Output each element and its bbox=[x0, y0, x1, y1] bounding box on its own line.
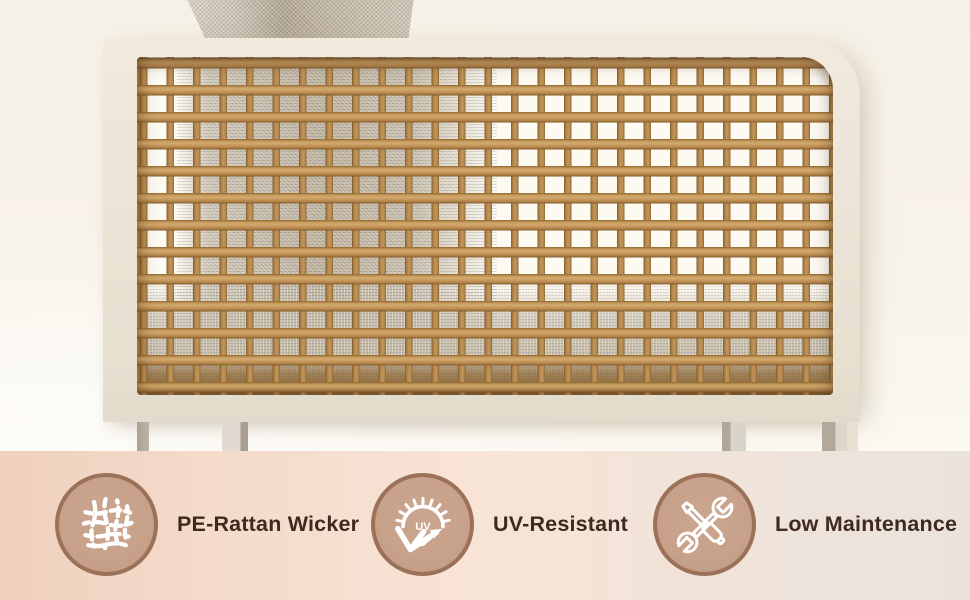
chair-leg bbox=[822, 422, 858, 451]
wicker-weave-icon bbox=[71, 489, 143, 561]
feature-label: PE-Rattan Wicker bbox=[177, 512, 359, 537]
crossed-tools-icon bbox=[669, 489, 741, 561]
feature-badge: UV bbox=[371, 473, 474, 576]
panel-inner-shadow bbox=[137, 57, 833, 395]
feature-low-maintenance: Low Maintenance bbox=[653, 473, 957, 576]
chair-leg bbox=[222, 422, 248, 451]
feature-uv-resistant: UV UV-Resistant bbox=[371, 473, 628, 576]
rattan-panel bbox=[137, 57, 833, 395]
product-showcase: PE-Rattan Wicker bbox=[0, 0, 970, 600]
feature-band: PE-Rattan Wicker bbox=[0, 451, 970, 600]
uv-sun-reflect-icon: UV bbox=[386, 488, 460, 562]
back-cushion bbox=[185, 0, 417, 40]
feature-label: UV-Resistant bbox=[493, 512, 628, 537]
feature-pe-rattan-wicker: PE-Rattan Wicker bbox=[55, 473, 359, 576]
feature-badge bbox=[653, 473, 756, 576]
chair-leg bbox=[137, 422, 149, 451]
feature-label: Low Maintenance bbox=[775, 512, 957, 537]
product-photo bbox=[0, 0, 970, 451]
chair-leg bbox=[722, 422, 746, 451]
chair-frame bbox=[103, 38, 860, 422]
feature-badge bbox=[55, 473, 158, 576]
